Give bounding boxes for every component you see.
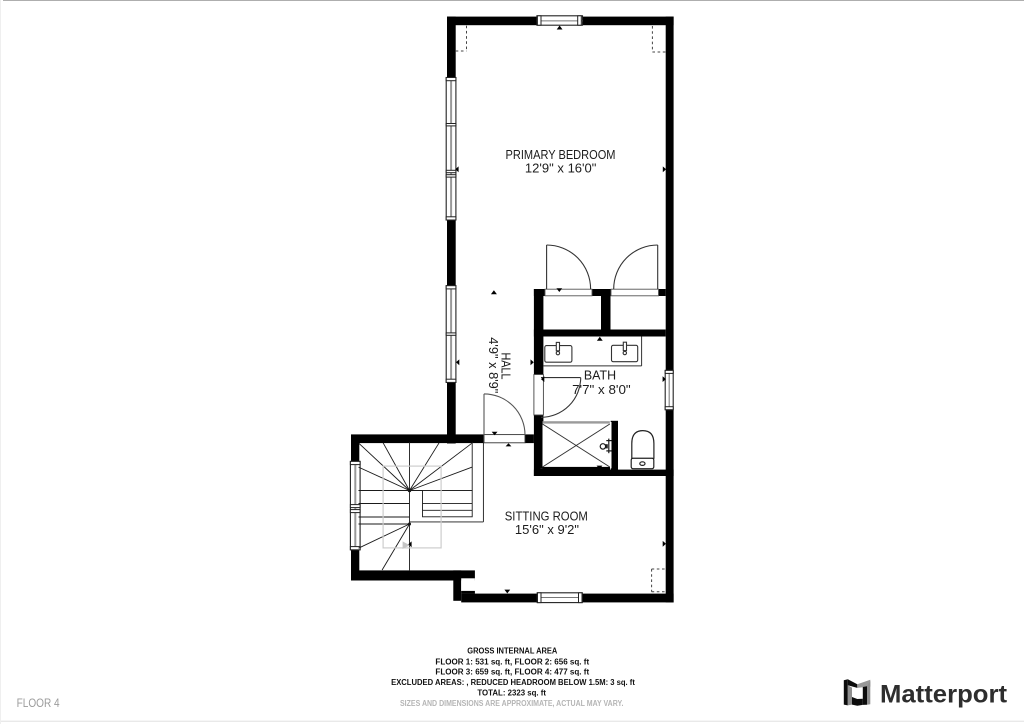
svg-text:4'9" x 8'9": 4'9" x 8'9": [486, 337, 500, 393]
svg-text:TOTAL: 2323 sq. ft: TOTAL: 2323 sq. ft: [477, 689, 546, 698]
svg-text:FLOOR 3: 659 sq. ft, FLOOR 4:: FLOOR 3: 659 sq. ft, FLOOR 4: 477 sq. ft: [435, 668, 589, 677]
svg-text:GROSS INTERNAL AREA: GROSS INTERNAL AREA: [467, 647, 557, 656]
svg-text:Matterport: Matterport: [880, 681, 1008, 709]
svg-text:SITTING ROOM: SITTING ROOM: [505, 510, 588, 524]
svg-text:7'7" x 8'0": 7'7" x 8'0": [572, 383, 631, 397]
svg-text:12'9" x 16'0": 12'9" x 16'0": [525, 161, 597, 175]
svg-text:PRIMARY BEDROOM: PRIMARY BEDROOM: [506, 148, 616, 162]
svg-text:BATH: BATH: [584, 369, 616, 383]
svg-text:FLOOR 1: 531 sq. ft, FLOOR 2:: FLOOR 1: 531 sq. ft, FLOOR 2: 656 sq. ft: [435, 657, 589, 666]
svg-text:FLOOR 4: FLOOR 4: [17, 696, 60, 710]
svg-text:15'6" x 9'2": 15'6" x 9'2": [515, 523, 579, 537]
svg-text:EXCLUDED AREAS: , REDUCED HEAD: EXCLUDED AREAS: , REDUCED HEADROOM BELOW…: [391, 678, 635, 687]
svg-text:SIZES AND DIMENSIONS ARE APPRO: SIZES AND DIMENSIONS ARE APPROXIMATE, AC…: [400, 699, 623, 708]
